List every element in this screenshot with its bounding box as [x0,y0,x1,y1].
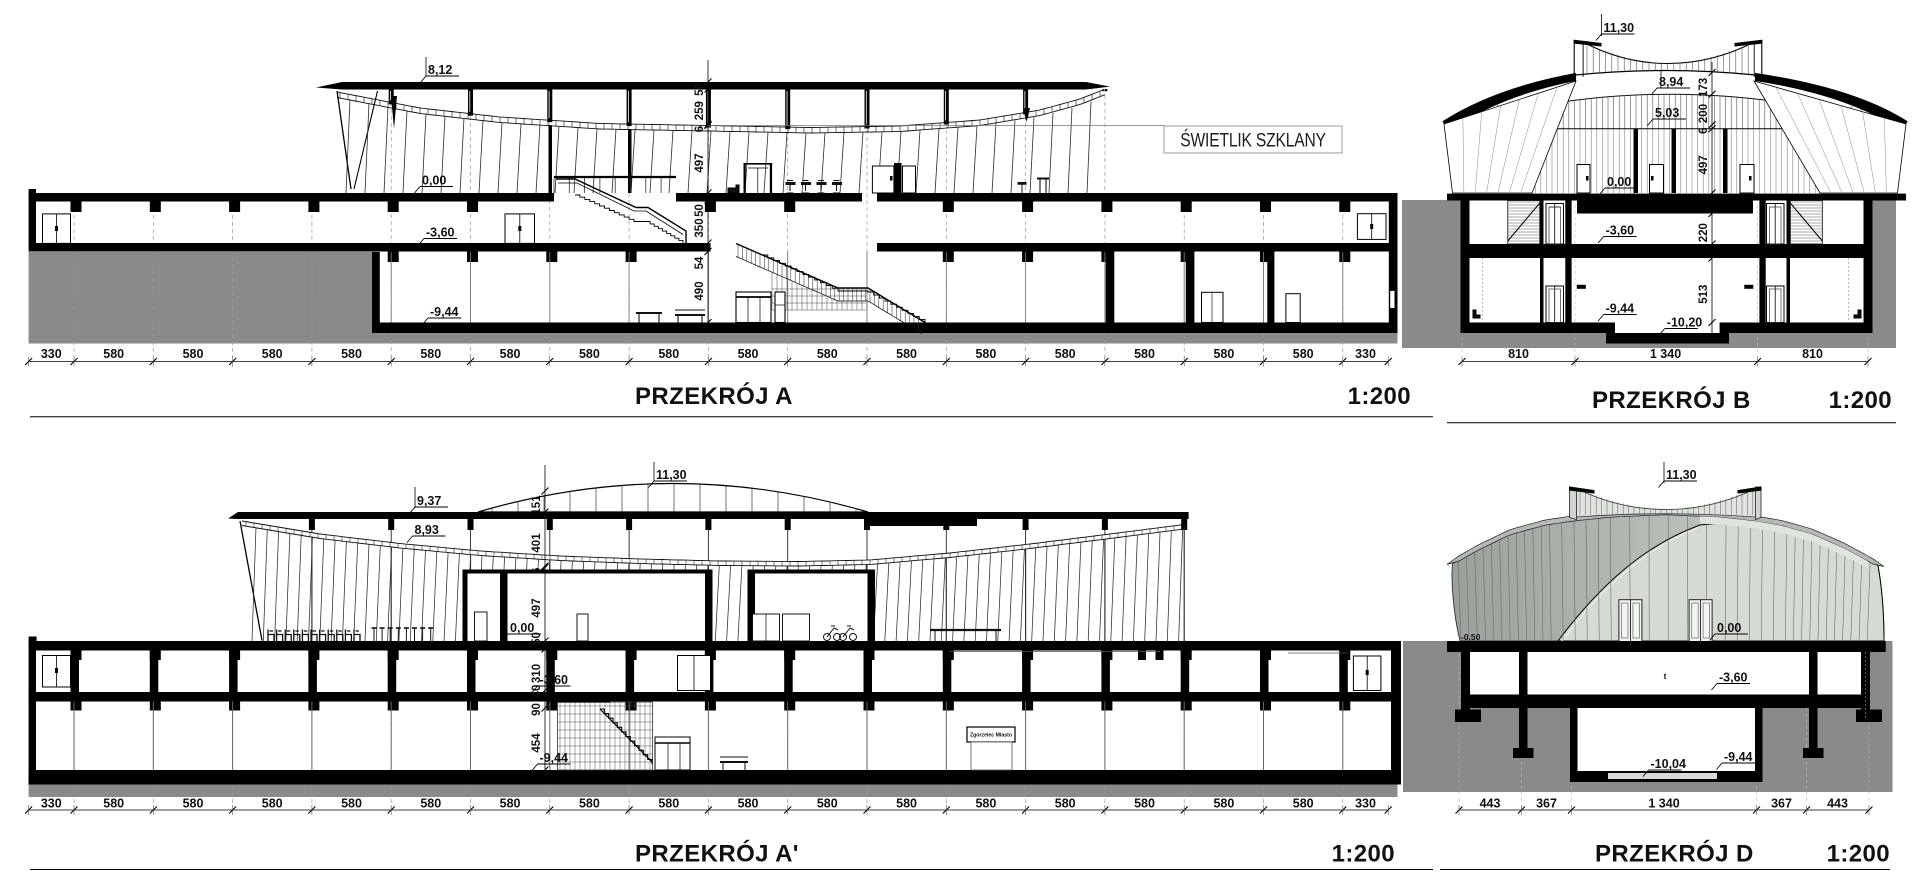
svg-text:330: 330 [1355,347,1376,361]
svg-text:1:200: 1:200 [1829,387,1892,414]
svg-text:497: 497 [531,598,543,617]
svg-text:580: 580 [183,347,204,361]
svg-text:1 340: 1 340 [1650,347,1681,361]
svg-text:8,94: 8,94 [1659,75,1683,89]
svg-text:580: 580 [1293,797,1314,811]
svg-text:-9,44: -9,44 [1724,750,1753,764]
svg-text:580: 580 [579,797,600,811]
svg-text:54: 54 [694,256,706,269]
svg-text:11,30: 11,30 [656,468,687,482]
svg-text:6: 6 [1698,127,1710,133]
svg-text:200: 200 [1698,104,1710,123]
svg-text:50: 50 [694,83,706,96]
svg-text:1 340: 1 340 [1648,797,1679,811]
svg-text:-10,20: -10,20 [1667,316,1702,330]
svg-text:580: 580 [500,797,521,811]
svg-text:Zgorzelec Miasto: Zgorzelec Miasto [970,733,1012,739]
svg-text:90: 90 [531,703,543,716]
svg-text:220: 220 [1698,223,1710,242]
svg-text:580: 580 [1293,347,1314,361]
svg-text:9,37: 9,37 [417,494,441,508]
svg-text:580: 580 [817,347,838,361]
svg-text:580: 580 [103,347,124,361]
svg-text:580: 580 [579,347,600,361]
svg-text:ŚWIETLIK SZKLANY: ŚWIETLIK SZKLANY [1180,128,1326,151]
svg-text:580: 580 [420,347,441,361]
svg-text:6: 6 [694,126,706,132]
svg-text:t: t [1664,671,1667,681]
svg-text:497: 497 [694,153,706,172]
svg-text:PRZEKRÓJ A': PRZEKRÓJ A' [635,840,799,868]
svg-text:PRZEKRÓJ D: PRZEKRÓJ D [1595,840,1754,868]
svg-text:443: 443 [1480,797,1501,811]
svg-text:173: 173 [1698,78,1710,97]
svg-text:-10,04: -10,04 [1651,757,1686,771]
svg-text:50: 50 [694,204,706,217]
svg-text:580: 580 [817,797,838,811]
svg-text:367: 367 [1536,797,1557,811]
svg-text:1:200: 1:200 [1827,841,1890,868]
svg-text:330: 330 [41,797,62,811]
svg-text:580: 580 [975,347,996,361]
svg-text:PRZEKRÓJ B: PRZEKRÓJ B [1592,386,1751,414]
svg-text:5,03: 5,03 [1655,106,1679,120]
svg-text:580: 580 [738,347,759,361]
svg-text:151: 151 [531,495,543,515]
svg-text:454: 454 [531,733,543,753]
svg-text:580: 580 [341,347,362,361]
svg-text:1:200: 1:200 [1332,841,1395,868]
svg-text:580: 580 [658,797,679,811]
svg-text:580: 580 [975,797,996,811]
svg-text:PRZEKRÓJ A: PRZEKRÓJ A [635,382,793,410]
svg-text:-3,60: -3,60 [426,226,455,240]
svg-text:580: 580 [738,797,759,811]
svg-text:-3,60: -3,60 [540,673,569,687]
svg-text:513: 513 [1698,285,1710,304]
svg-text:580: 580 [500,347,521,361]
svg-text:490: 490 [694,281,706,300]
svg-text:580: 580 [1134,797,1155,811]
svg-text:350: 350 [694,218,706,237]
svg-text:-9,44: -9,44 [430,305,459,319]
svg-text:330: 330 [41,347,62,361]
svg-text:580: 580 [420,797,441,811]
svg-text:11,30: 11,30 [1604,21,1635,35]
svg-text:580: 580 [1055,797,1076,811]
svg-text:810: 810 [1802,347,1823,361]
svg-text:-3,60: -3,60 [1719,671,1748,685]
svg-text:580: 580 [341,797,362,811]
svg-text:580: 580 [1213,347,1234,361]
svg-text:-9,44: -9,44 [1606,302,1635,316]
svg-text:11,30: 11,30 [1666,468,1697,482]
svg-text:810: 810 [1508,347,1529,361]
svg-text:580: 580 [896,347,917,361]
svg-text:8,93: 8,93 [415,523,439,537]
svg-text:580: 580 [1213,797,1234,811]
svg-text:-9,44: -9,44 [540,751,569,765]
svg-text:8,12: 8,12 [428,63,452,77]
svg-text:580: 580 [1134,347,1155,361]
svg-text:-0,50: -0,50 [1461,632,1481,642]
svg-text:259: 259 [694,101,706,120]
svg-text:580: 580 [262,797,283,811]
svg-text:0,00: 0,00 [1607,175,1631,189]
svg-text:367: 367 [1771,797,1792,811]
svg-text:0,00: 0,00 [1717,621,1741,635]
svg-text:580: 580 [896,797,917,811]
svg-text:1:200: 1:200 [1348,383,1411,410]
svg-text:580: 580 [262,347,283,361]
svg-text:0,00: 0,00 [422,174,446,188]
svg-text:-3,60: -3,60 [1606,224,1635,238]
svg-text:401: 401 [531,533,543,553]
svg-text:580: 580 [183,797,204,811]
svg-text:497: 497 [1698,155,1710,174]
svg-text:330: 330 [1355,797,1376,811]
svg-text:6: 6 [531,568,543,574]
svg-text:580: 580 [658,347,679,361]
svg-text:580: 580 [1055,347,1076,361]
svg-text:0,00: 0,00 [510,621,534,635]
svg-text:443: 443 [1827,797,1848,811]
svg-text:580: 580 [103,797,124,811]
